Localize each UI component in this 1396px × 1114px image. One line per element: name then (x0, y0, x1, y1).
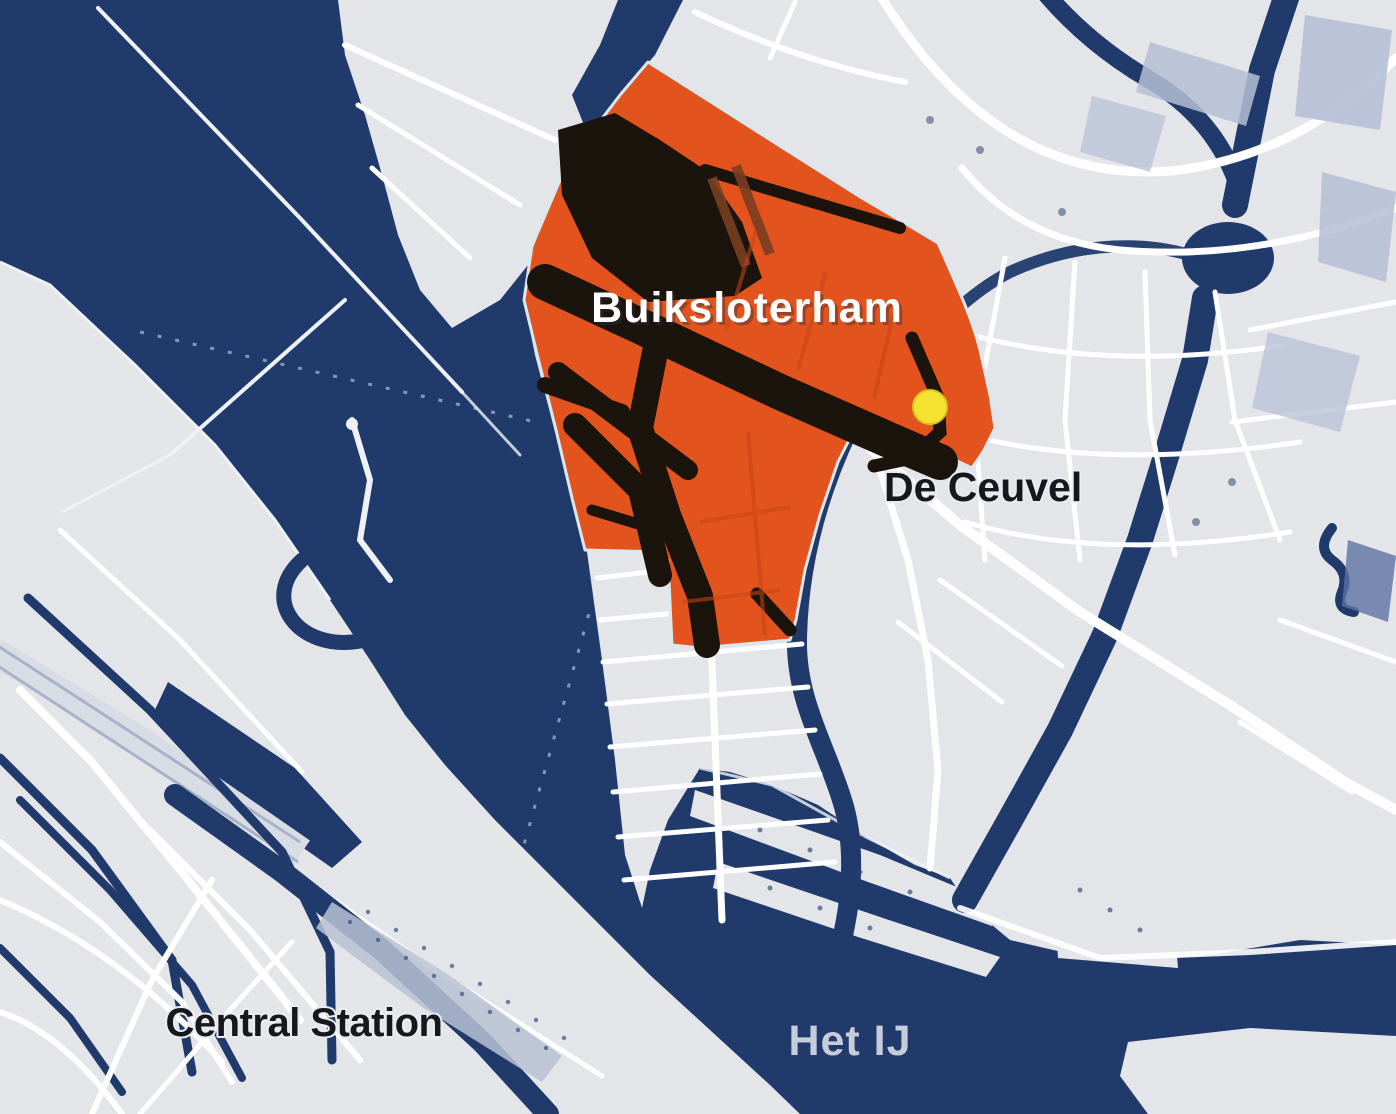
ij-pier-hatched (1052, 860, 1178, 968)
land-pier-bottom-right (1120, 1028, 1396, 1114)
label-het-ij: Het IJ (788, 1017, 911, 1065)
map-screenshot: Buiksloterham Buiksloterham De Ceuvel Ce… (0, 0, 1396, 1114)
label-de-ceuvel: De Ceuvel (884, 464, 1082, 510)
map-canvas[interactable]: Buiksloterham Buiksloterham De Ceuvel Ce… (0, 0, 1396, 1114)
label-central-station: Central Station (166, 1001, 443, 1045)
label-buiksloterham: Buiksloterham (591, 284, 903, 332)
de-ceuvel-marker[interactable] (913, 390, 947, 424)
